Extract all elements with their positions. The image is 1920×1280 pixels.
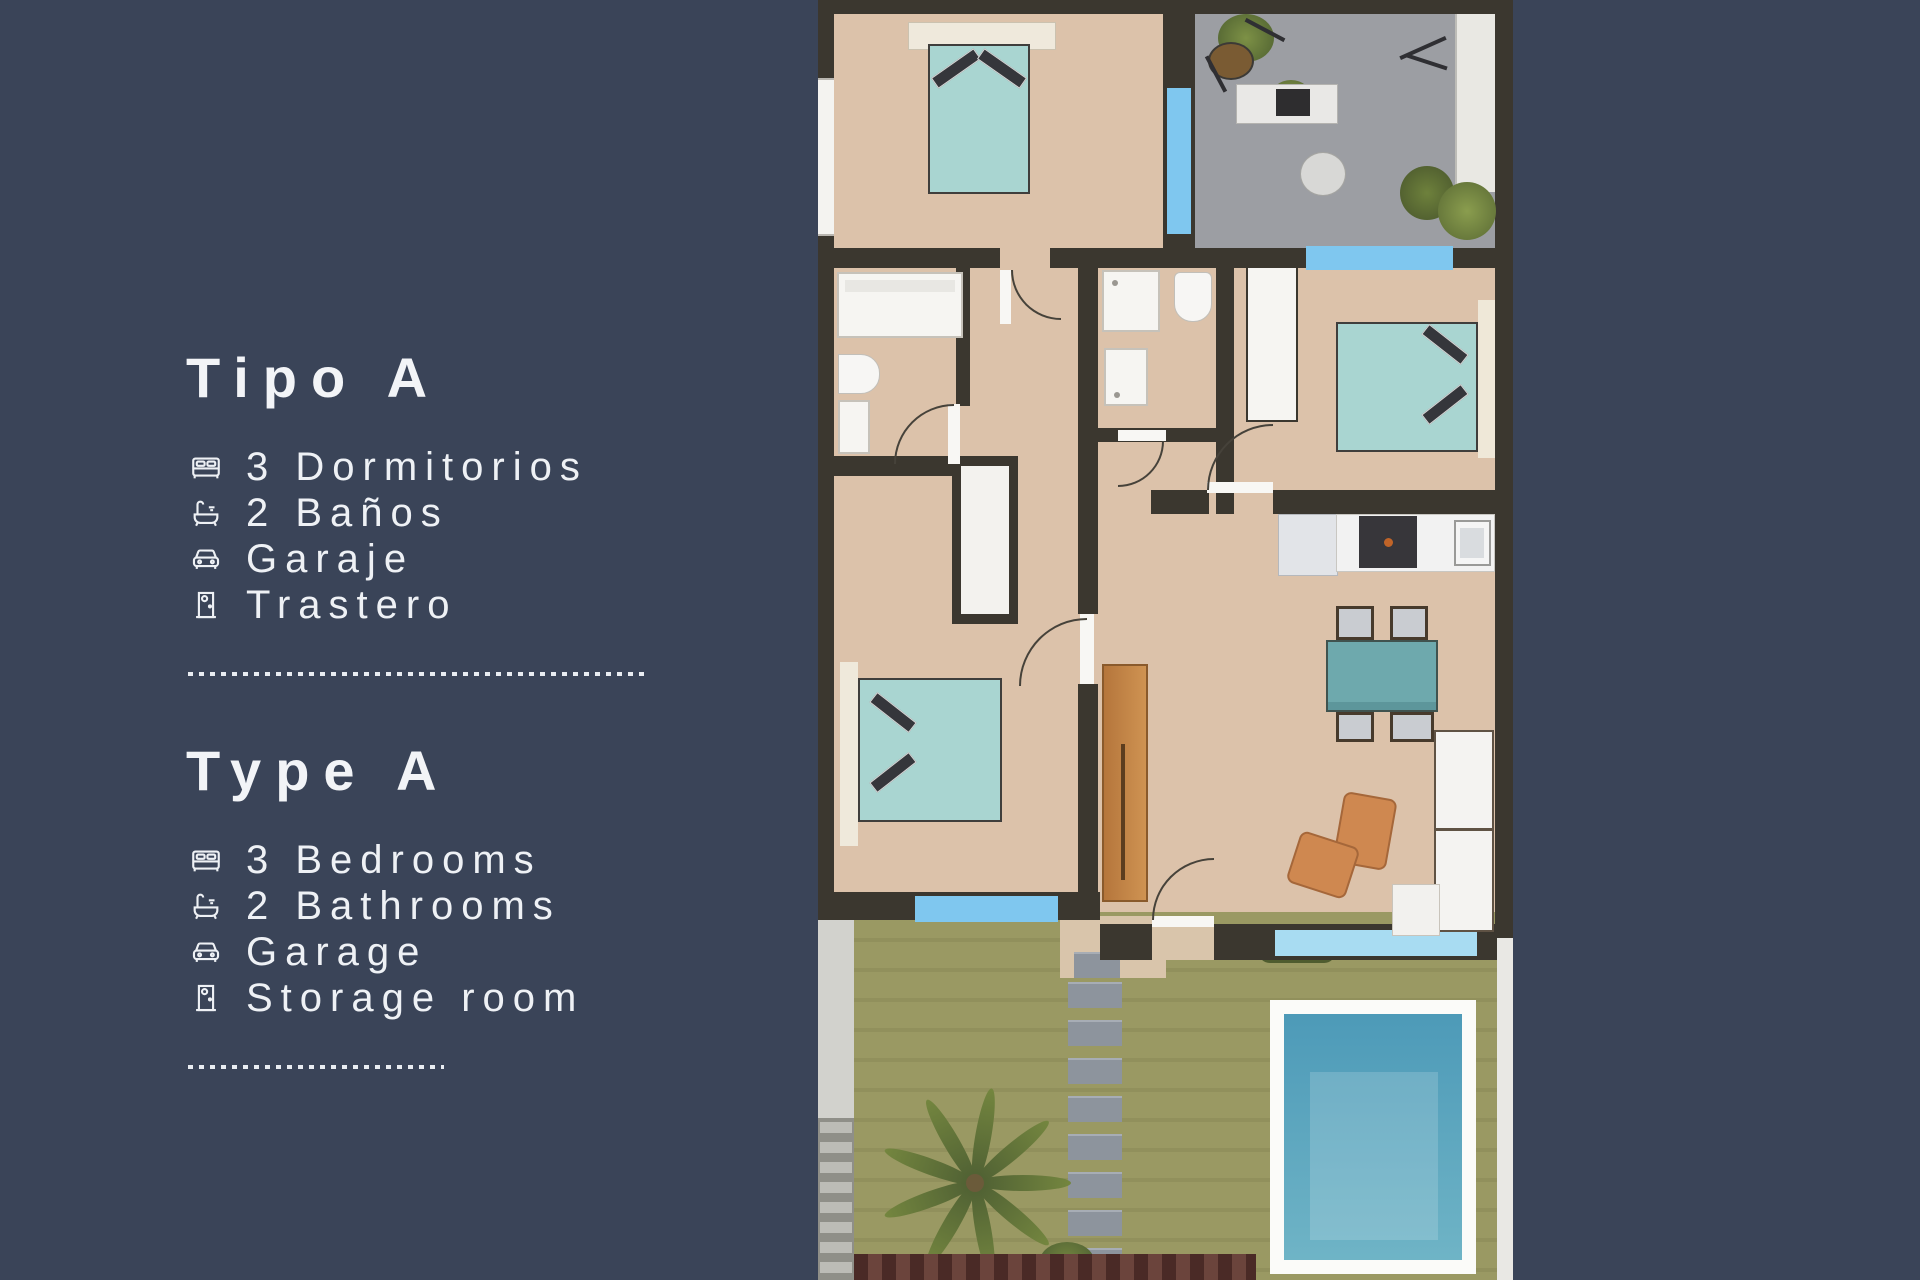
feature-list-english: 3 Bedrooms 2 Bathrooms [186, 837, 710, 1021]
feature-label: 2 Bathrooms [246, 884, 561, 929]
bathtub-icon [186, 887, 226, 925]
toilet [1174, 272, 1212, 322]
dotted-divider [188, 1065, 444, 1069]
terrace-round-table [1300, 152, 1346, 196]
terrace-table-tray [1276, 89, 1310, 116]
stepping-stone [1068, 1210, 1122, 1236]
feature-label: Garaje [246, 537, 414, 582]
info-panel: Tipo A 3 Dormitorios [150, 345, 710, 1069]
closet [961, 466, 1009, 614]
exterior-stairs [818, 1118, 854, 1280]
window [818, 78, 834, 236]
window [1275, 930, 1477, 956]
feature-label: Trastero [246, 583, 457, 628]
toilet [838, 354, 880, 394]
feature-bedrooms-es: 3 Dormitorios [186, 444, 710, 490]
storage-door-handle [1121, 744, 1125, 880]
palm-tree [880, 1088, 1070, 1278]
cooktop-burner [1384, 538, 1393, 547]
sofa [1434, 730, 1494, 932]
sink [1104, 348, 1148, 406]
feature-bathrooms-es: 2 Baños [186, 490, 710, 536]
section-title-spanish: Tipo A [186, 345, 710, 410]
door-icon [186, 979, 226, 1017]
dining-chair [1390, 712, 1434, 742]
door-leaf [1000, 270, 1011, 324]
bathtub-inner [845, 280, 955, 292]
window [1167, 88, 1191, 234]
wall [1078, 684, 1098, 898]
entrance-opening [1152, 924, 1214, 960]
feature-storage-en: Storage room [186, 975, 710, 1021]
feature-label: 3 Bedrooms [246, 838, 542, 883]
sink [838, 400, 870, 454]
pool-water-highlight [1310, 1072, 1438, 1240]
bed-icon [186, 448, 226, 486]
bed-headboard [1478, 300, 1495, 458]
shower [1102, 270, 1160, 332]
wall [1453, 248, 1497, 268]
wall [1078, 268, 1098, 614]
window [915, 896, 1058, 922]
feature-bathrooms-en: 2 Bathrooms [186, 883, 710, 929]
dotted-divider [188, 672, 650, 676]
stepping-stone [1068, 1134, 1122, 1160]
stepping-stone [1068, 982, 1122, 1008]
section-english: Type A 3 Bedrooms [150, 738, 710, 1069]
dining-chair [1336, 712, 1374, 742]
feature-garage-en: Garage [186, 929, 710, 975]
wardrobe [1246, 266, 1298, 422]
kitchen-sink-basin [1460, 528, 1484, 558]
floorplan [818, 0, 1513, 1280]
feature-label: Garage [246, 930, 427, 975]
car-icon [186, 933, 226, 971]
bed-headboard [840, 662, 858, 846]
outer-wall-light [1497, 935, 1513, 1280]
terrace-planter-wall [1455, 14, 1495, 192]
feature-label: Storage room [246, 976, 584, 1021]
bed-icon [186, 841, 226, 879]
dining-chair [1390, 606, 1428, 640]
sofa-divider [1436, 828, 1492, 831]
stepping-stone [1068, 1058, 1122, 1084]
sink-drain [1114, 392, 1120, 398]
side-table [1392, 884, 1440, 936]
door-icon [186, 586, 226, 624]
feature-garage-es: Garaje [186, 536, 710, 582]
fridge [1278, 514, 1338, 576]
door-leaf [1118, 430, 1166, 441]
stepping-stone [1068, 1096, 1122, 1122]
stepping-stone [1068, 1172, 1122, 1198]
feature-label: 3 Dormitorios [246, 445, 588, 490]
storage-door [1102, 664, 1148, 902]
feature-list-spanish: 3 Dormitorios 2 Baños [186, 444, 710, 628]
dining-chair [1336, 606, 1374, 640]
wall [1151, 490, 1209, 514]
terrace-bush [1438, 182, 1496, 240]
section-title-english: Type A [186, 738, 710, 803]
flower-bed [854, 1254, 1256, 1280]
window [1306, 246, 1453, 270]
feature-storage-es: Trastero [186, 582, 710, 628]
feature-bedrooms-en: 3 Bedrooms [186, 837, 710, 883]
shower-drain [1112, 280, 1118, 286]
stepping-stone [1068, 1020, 1122, 1046]
wall [1495, 0, 1513, 938]
car-icon [186, 540, 226, 578]
bathtub-icon [186, 494, 226, 532]
feature-label: 2 Baños [246, 491, 449, 536]
wall [1273, 490, 1497, 514]
wall [818, 248, 1000, 268]
section-spanish: Tipo A 3 Dormitorios [150, 345, 710, 676]
bed-1 [928, 44, 1030, 194]
dining-table [1326, 640, 1438, 712]
wall [1050, 248, 1306, 268]
